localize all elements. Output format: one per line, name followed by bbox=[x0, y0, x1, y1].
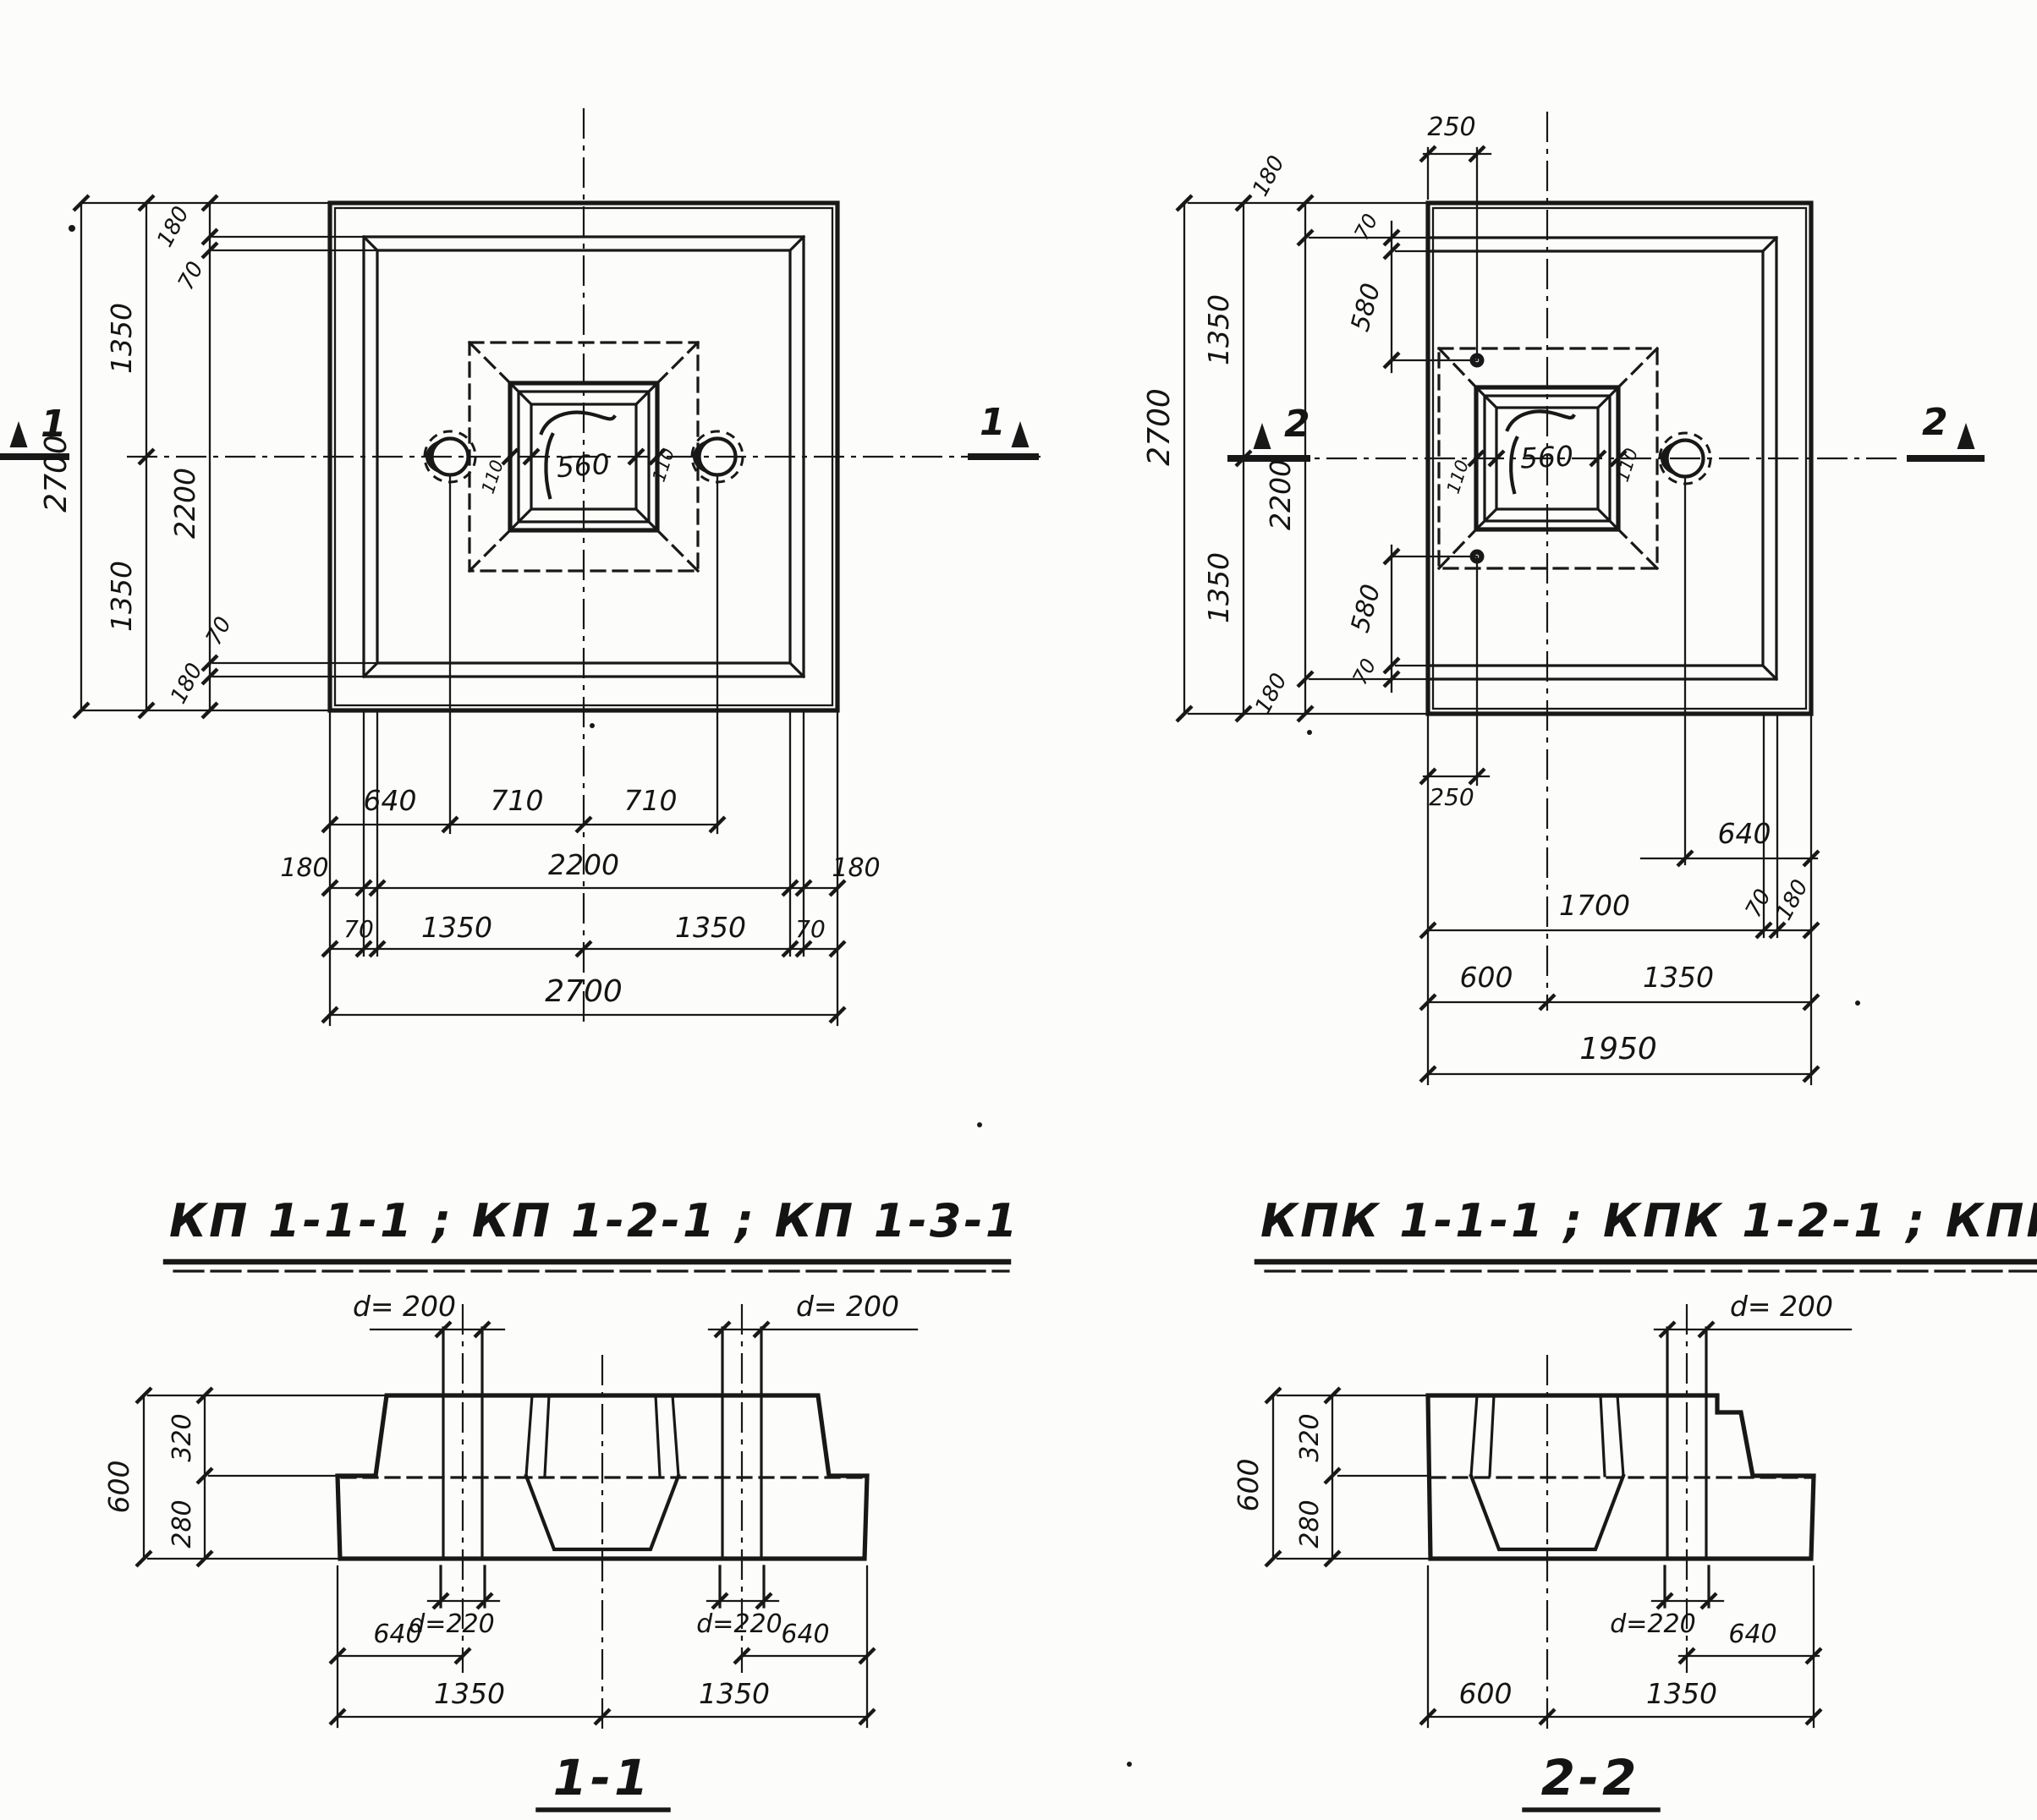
socket-width: 560 bbox=[555, 447, 611, 484]
dim-pr-b-offset: 250 bbox=[1429, 783, 1474, 811]
dim-pl-b-edge-r: 180 bbox=[832, 853, 880, 883]
cut-mark-1-right: 1 bbox=[971, 401, 1035, 457]
dim-pl-b-half-l: 1350 bbox=[421, 911, 492, 944]
cut-label-1-right: 1 bbox=[980, 401, 1006, 444]
dim-pl-b-edge-l: 180 bbox=[280, 853, 328, 883]
s11-dia-top-right: d= 200 bbox=[796, 1290, 899, 1323]
dim-pl-b-inner: 2200 bbox=[548, 848, 619, 881]
s11-height-top: 320 bbox=[167, 1413, 197, 1461]
plan-left-socket: 110 560 110 bbox=[478, 383, 678, 530]
label-1-1: 1-1 bbox=[553, 1749, 652, 1806]
s22-edge: 640 bbox=[1728, 1620, 1776, 1649]
dim-pr-b-1700: 1700 bbox=[1559, 889, 1630, 922]
title-left: КП 1-1-1 ; КП 1-2-1 ; КП 1-3-1 bbox=[169, 1194, 1019, 1247]
dim-pl-step-top: 70 bbox=[173, 258, 209, 294]
dim-pr-hole-bottom: 580 bbox=[1346, 581, 1387, 635]
plan-right: 110 560 110 2 2 250 bbox=[1142, 112, 1981, 1084]
dim-pr-step-top: 70 bbox=[1349, 210, 1382, 244]
foundation-drawing: 110 560 110 1 1 2700 1350 1350 2200 bbox=[0, 0, 2037, 1820]
dim-pl-half-bottom: 1350 bbox=[105, 561, 138, 632]
drawing-sheet: 110 560 110 1 1 2700 1350 1350 2200 bbox=[0, 0, 2037, 1820]
dim-pl-b-step-l: 70 bbox=[343, 915, 374, 943]
s11-half-left: 1350 bbox=[434, 1677, 505, 1710]
dim-pr-half-top: 1350 bbox=[1202, 294, 1235, 365]
s22-height-top: 320 bbox=[1295, 1413, 1325, 1461]
dim-pl-edge-top: 180 bbox=[152, 202, 195, 251]
s11-edge-left: 640 bbox=[373, 1620, 421, 1649]
dim-pr-b-hole-edge: 640 bbox=[1718, 817, 1771, 850]
dim-pr-step-bottom: 70 bbox=[1348, 655, 1381, 688]
plan-left: 110 560 110 1 1 2700 1350 1350 2200 bbox=[2, 108, 1042, 1025]
dim-pl-b-total: 2700 bbox=[545, 974, 623, 1009]
dim-pr-b-step: 70 bbox=[1741, 885, 1776, 922]
dim-pl-b-step-r: 70 bbox=[795, 915, 826, 943]
dim-pr-edge-top: 180 bbox=[1248, 151, 1290, 200]
s11-half-right: 1350 bbox=[699, 1677, 770, 1710]
s22-dia-bot: d=220 bbox=[1610, 1609, 1695, 1639]
s11-edge-right: 640 bbox=[781, 1620, 829, 1649]
dim-pl-half-top: 1350 bbox=[105, 303, 138, 374]
section-1-1: d= 200 d= 200 d=220 d=220 600 320 280 64… bbox=[102, 1290, 917, 1810]
s11-dia-bot-right: d=220 bbox=[696, 1609, 782, 1639]
title-right: КПК 1-1-1 ; КПК 1-2-1 ; КПК 1-3-1 bbox=[1260, 1194, 2037, 1247]
dim-pr-b-total: 1950 bbox=[1579, 1032, 1657, 1066]
dim-pr-inner: 2200 bbox=[1264, 459, 1297, 530]
cut-label-2-right: 2 bbox=[1922, 401, 1948, 444]
s22-height-total: 600 bbox=[1232, 1459, 1265, 1512]
dim-pr-edge-bottom: 180 bbox=[1250, 669, 1293, 718]
dim-pl-step-bottom: 70 bbox=[201, 613, 237, 650]
s11-dia-top-left: d= 200 bbox=[353, 1290, 456, 1323]
titles: КП 1-1-1 ; КП 1-2-1 ; КП 1-3-1 КПК 1-1-1… bbox=[166, 1194, 2037, 1271]
dim-pl-b-half-r: 1350 bbox=[675, 911, 746, 944]
label-2-2: 2-2 bbox=[1541, 1749, 1640, 1806]
s22-height-bottom: 280 bbox=[1295, 1499, 1325, 1548]
section-2-2: d= 200 d=220 600 320 280 640 600 1350 2-… bbox=[1232, 1290, 1851, 1810]
s11-height-bottom: 280 bbox=[167, 1499, 197, 1548]
dim-pl-inner: 2200 bbox=[168, 468, 201, 539]
dim-pr-hole-top: 580 bbox=[1346, 280, 1387, 334]
dim-pr-b-half: 1350 bbox=[1643, 961, 1714, 994]
socket-lip-left: 110 bbox=[478, 458, 508, 496]
socket-scribble bbox=[541, 413, 614, 433]
dim-pr-half-bottom: 1350 bbox=[1202, 552, 1235, 623]
dim-pr-total: 2700 bbox=[1142, 388, 1177, 466]
dim-pr-b-axis: 600 bbox=[1460, 961, 1513, 994]
s22-axis: 600 bbox=[1459, 1677, 1513, 1710]
dim-pl-hole-edge: 640 bbox=[364, 784, 417, 817]
dim-pl-center-hole: 710 bbox=[624, 784, 678, 817]
socket-width: 560 bbox=[1519, 439, 1574, 474]
dim-pl-total: 2700 bbox=[39, 435, 74, 513]
s11-height-total: 600 bbox=[102, 1461, 135, 1514]
dim-pl-hole-center: 710 bbox=[491, 784, 544, 817]
dim-pr-top-offset: 250 bbox=[1427, 112, 1475, 142]
socket-lip-right: 110 bbox=[649, 446, 678, 485]
cut-mark-2-right: 2 bbox=[1910, 401, 1981, 458]
s22-dia-top: d= 200 bbox=[1730, 1290, 1833, 1323]
socket-lip-left: 110 bbox=[1443, 458, 1473, 496]
s22-half: 1350 bbox=[1646, 1677, 1717, 1710]
